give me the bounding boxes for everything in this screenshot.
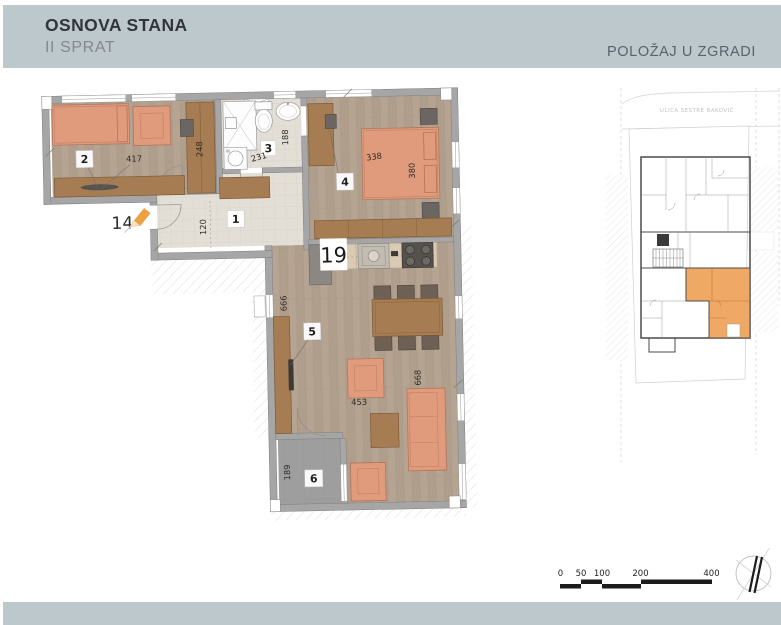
scale-tick-400: 400 xyxy=(703,569,719,579)
nightstand xyxy=(422,202,439,217)
scale-tick-100: 100 xyxy=(594,569,610,579)
dim-668: 668 xyxy=(412,370,422,386)
dresser xyxy=(54,175,184,197)
scale-bar: 0 50 100 200 400 xyxy=(558,569,720,589)
dim-248: 248 xyxy=(194,141,204,157)
dim-453: 453 xyxy=(351,397,367,407)
stairs xyxy=(653,249,683,267)
scale-tick-0: 0 xyxy=(558,569,563,579)
sink xyxy=(276,102,300,120)
tv xyxy=(180,119,193,136)
street-label: ULICA SESTRE BAKOVIĆ xyxy=(660,107,734,114)
armchair xyxy=(350,462,386,501)
site-map: ULICA SESTRE BAKOVIĆ xyxy=(598,85,781,490)
coffee-table xyxy=(370,413,399,448)
desk-chair xyxy=(325,114,336,128)
section-label-position: POLOŽAJ U ZGRADI xyxy=(607,44,756,60)
dim-417: 417 xyxy=(126,153,142,163)
hall-cabinet xyxy=(219,177,269,199)
entrance-marker: 19 xyxy=(320,238,348,271)
scale-tick-200: 200 xyxy=(632,569,648,579)
plan-sheet: OSNOVA STANA II SPRAT POLOŽAJ U ZGRADI xyxy=(0,0,781,625)
washing-machine xyxy=(224,147,247,169)
room-label-5: 5 xyxy=(308,325,316,338)
pillow xyxy=(424,165,437,192)
dining-table xyxy=(372,298,443,336)
page-title: OSNOVA STANA xyxy=(45,15,188,36)
closet-band xyxy=(314,218,451,239)
sofa xyxy=(407,388,447,471)
svg-text:19: 19 xyxy=(320,243,347,268)
dim-666: 666 xyxy=(278,295,288,311)
room-label-1: 1 xyxy=(232,213,240,226)
page-subtitle: II SPRAT xyxy=(45,39,115,57)
elevator xyxy=(657,234,669,246)
dim-189: 189 xyxy=(282,464,292,480)
footer-bar xyxy=(3,602,781,625)
dining-set xyxy=(372,285,443,351)
dim-188: 188 xyxy=(280,129,290,145)
room-label-4: 4 xyxy=(341,176,349,189)
floor-plan: 2 417 248 3 231 188 4 338 380 1 120 5 66… xyxy=(38,83,482,530)
shower xyxy=(223,101,257,151)
toilet xyxy=(255,102,273,133)
room-label-2: 2 xyxy=(81,153,89,166)
scale-tick-50: 50 xyxy=(576,569,587,579)
north-compass-icon xyxy=(736,548,771,600)
faucet-icon xyxy=(391,251,398,256)
dim-120: 120 xyxy=(198,219,208,235)
dim-380: 380 xyxy=(407,163,417,179)
scale-and-compass: 0 50 100 200 400 xyxy=(545,548,781,606)
nightstand xyxy=(420,108,437,124)
stove xyxy=(402,242,434,268)
pillow xyxy=(117,106,128,142)
apartment-marker: 14 xyxy=(111,214,133,234)
pillow xyxy=(424,132,437,159)
armchair xyxy=(347,358,384,398)
armchair xyxy=(133,106,171,146)
kitchen-sink xyxy=(358,243,390,269)
room-label-6: 6 xyxy=(310,472,318,485)
